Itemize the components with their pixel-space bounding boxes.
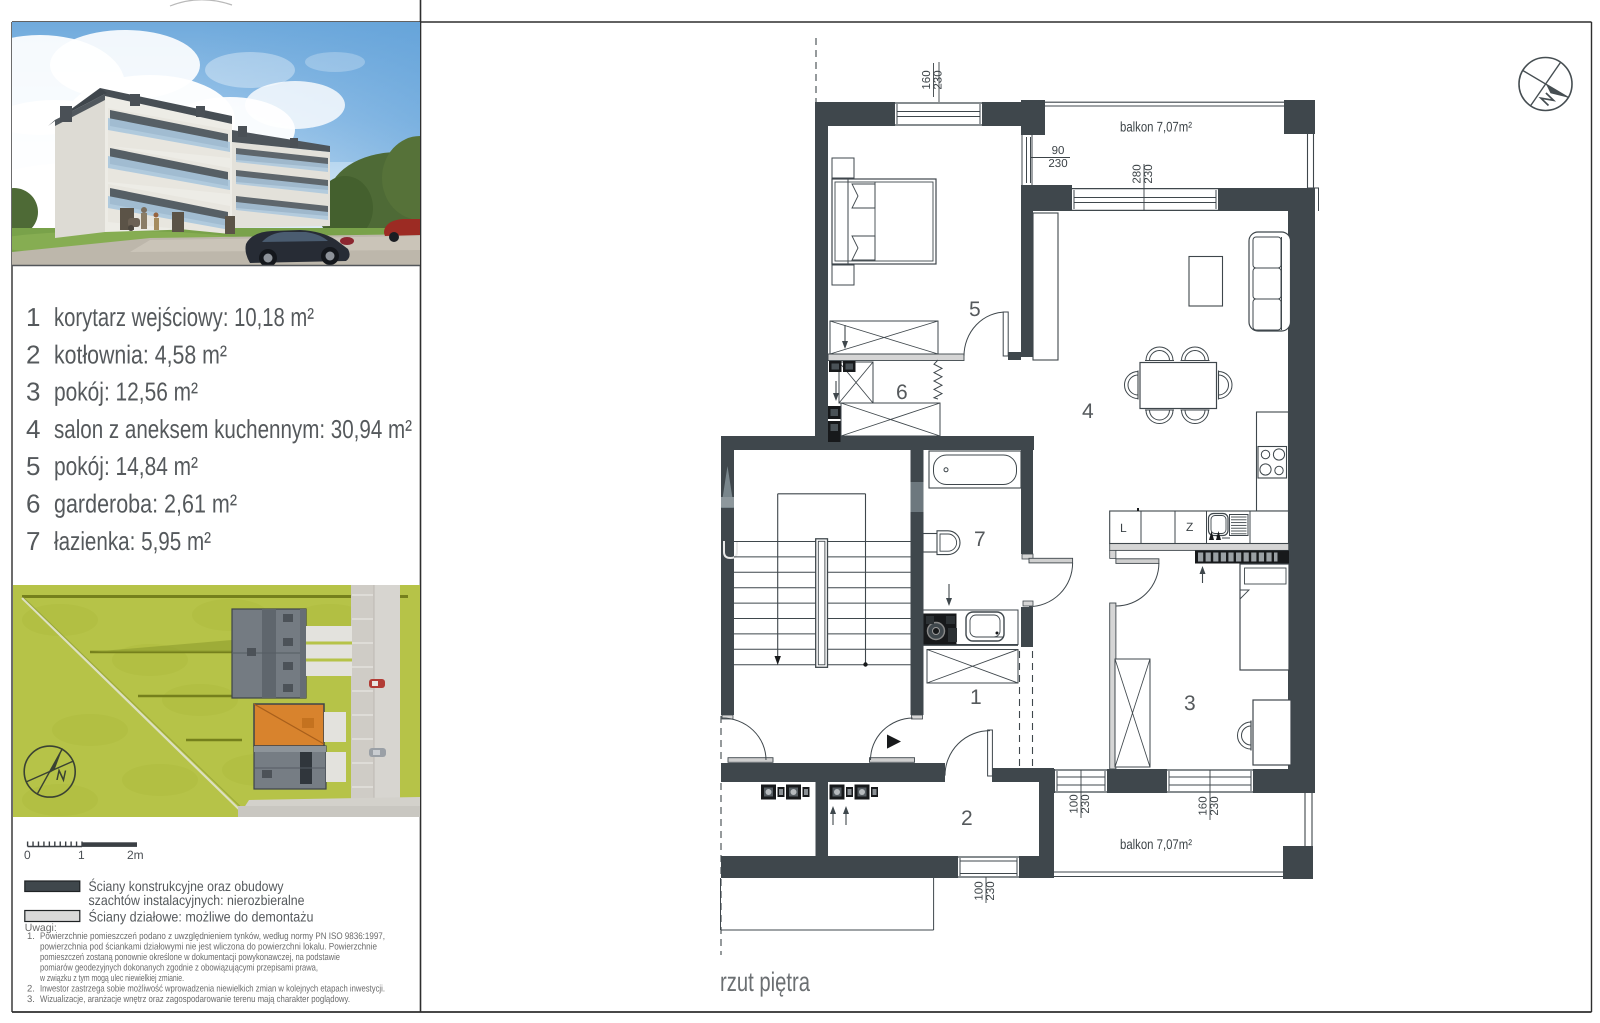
svg-text:3: 3: [1184, 692, 1196, 715]
svg-text:Z: Z: [1186, 520, 1193, 534]
svg-text:4: 4: [26, 414, 40, 444]
svg-text:2: 2: [961, 807, 973, 830]
svg-text:7: 7: [26, 526, 40, 556]
svg-text:230: 230: [1048, 158, 1067, 170]
svg-text:pomieszczeń zostaną ponownie o: pomieszczeń zostaną ponownie określone w…: [40, 952, 340, 963]
svg-text:1: 1: [970, 686, 982, 709]
svg-text:łazienka: 5,95 m²: łazienka: 5,95 m²: [54, 526, 211, 556]
svg-text:salon z aneksem kuchennym: 30: salon z aneksem kuchennym: 30,94 m²: [54, 414, 412, 444]
svg-text:2.: 2.: [27, 984, 35, 995]
svg-text:280: 280: [1132, 164, 1144, 183]
svg-text:balkon 7,07m²: balkon 7,07m²: [1120, 836, 1192, 852]
svg-text:5: 5: [969, 298, 981, 321]
svg-text:pokój: 12,56 m²: pokój: 12,56 m²: [54, 377, 198, 407]
svg-text:3: 3: [26, 377, 40, 407]
svg-text:160: 160: [921, 70, 933, 89]
svg-text:rzut piętra: rzut piętra: [720, 967, 811, 997]
svg-text:230: 230: [1143, 164, 1155, 183]
svg-text:balkon 7,07m²: balkon 7,07m²: [1120, 119, 1192, 135]
svg-text:6: 6: [896, 381, 908, 404]
svg-text:0: 0: [24, 848, 31, 862]
svg-text:Wizualizacje, aranżacje wnętrz: Wizualizacje, aranżacje wnętrz oraz zago…: [40, 994, 350, 1005]
svg-text:Ściany działowe: możliwe do de: Ściany działowe: możliwe do demontażu: [89, 909, 314, 925]
svg-text:1: 1: [78, 848, 85, 862]
svg-text:pomiarów geodezyjnych dokonany: pomiarów geodezyjnych dokonanych zgodnie…: [40, 963, 318, 974]
svg-text:230: 230: [1209, 796, 1221, 815]
svg-text:powierzchnia pod ściankami dzi: powierzchnia pod ściankami działowymi ni…: [40, 942, 377, 953]
svg-text:7: 7: [974, 528, 986, 551]
svg-text:4: 4: [1082, 400, 1094, 423]
svg-text:Powierzchnie pomieszczeń podan: Powierzchnie pomieszczeń podano z uwzglę…: [40, 931, 385, 942]
svg-text:szachtów instalacyjnych: niero: szachtów instalacyjnych: nierozbieralne: [89, 892, 305, 908]
svg-text:kotłownia: 4,58 m²: kotłownia: 4,58 m²: [54, 339, 227, 369]
svg-text:L: L: [1120, 521, 1127, 535]
svg-text:100: 100: [1069, 794, 1081, 813]
svg-text:2m: 2m: [127, 848, 144, 862]
svg-text:5: 5: [26, 451, 40, 481]
svg-text:230: 230: [985, 881, 997, 900]
svg-text:1.: 1.: [27, 931, 35, 942]
svg-text:Inwestor zastrzega sobie możli: Inwestor zastrzega sobie możliwość wprow…: [40, 984, 385, 995]
svg-text:230: 230: [1080, 794, 1092, 813]
svg-text:w związku z tym mogą ulec niew: w związku z tym mogą ulec niewielkiej zm…: [39, 973, 184, 984]
svg-text:3.: 3.: [27, 994, 35, 1005]
svg-text:6: 6: [26, 489, 40, 519]
svg-text:pokój: 14,84 m²: pokój: 14,84 m²: [54, 451, 198, 481]
svg-text:1: 1: [26, 302, 40, 332]
svg-text:230: 230: [933, 70, 945, 89]
svg-text:korytarz wejściowy: 10,18 m²: korytarz wejściowy: 10,18 m²: [54, 302, 314, 332]
svg-text:90: 90: [1052, 145, 1065, 157]
svg-text:garderoba: 2,61 m²: garderoba: 2,61 m²: [54, 489, 237, 519]
svg-text:100: 100: [974, 881, 986, 900]
svg-text:2: 2: [26, 339, 40, 369]
svg-text:160: 160: [1198, 796, 1210, 815]
